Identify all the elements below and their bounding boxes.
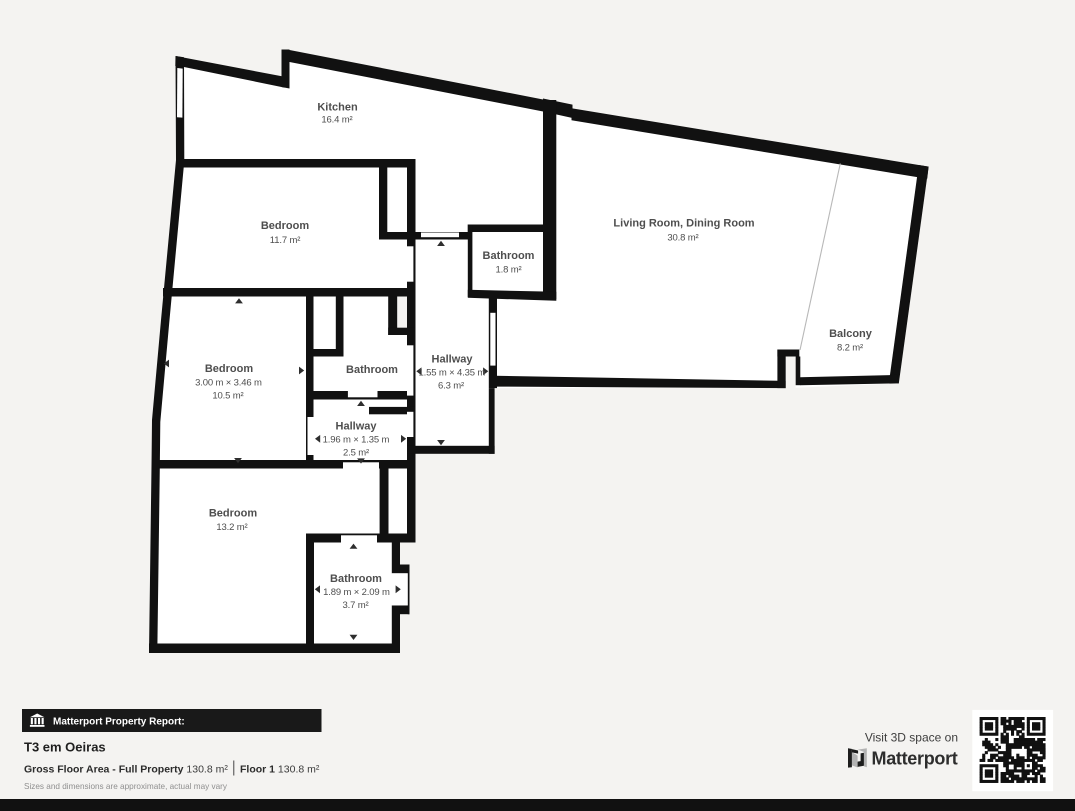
svg-text:Bathroom: Bathroom — [346, 364, 398, 376]
svg-text:2.5 m²: 2.5 m² — [343, 448, 369, 459]
svg-text:Sizes and dimensions are appro: Sizes and dimensions are approximate, ac… — [24, 782, 228, 791]
svg-text:Bathroom: Bathroom — [483, 250, 535, 262]
svg-text:Bedroom: Bedroom — [209, 508, 258, 520]
svg-text:Bedroom: Bedroom — [261, 220, 310, 232]
svg-text:13.2 m²: 13.2 m² — [216, 522, 247, 533]
svg-text:3.7 m²: 3.7 m² — [342, 600, 368, 611]
svg-text:Matterport: Matterport — [872, 749, 958, 769]
svg-text:Matterport Property Report:: Matterport Property Report: — [53, 717, 185, 728]
svg-text:Balcony: Balcony — [829, 328, 873, 340]
svg-text:Hallway: Hallway — [432, 354, 474, 366]
svg-text:T3 em Oeiras: T3 em Oeiras — [24, 740, 106, 755]
svg-text:Living Room, Dining Room: Living Room, Dining Room — [613, 218, 754, 230]
svg-text:1.96 m × 1.35 m: 1.96 m × 1.35 m — [323, 435, 390, 446]
svg-text:Hallway: Hallway — [336, 421, 378, 433]
svg-text:Gross Floor Area - Full Proper: Gross Floor Area - Full Property 130.8 m… — [24, 764, 228, 776]
svg-text:Bathroom: Bathroom — [330, 573, 382, 585]
svg-text:Visit 3D space on: Visit 3D space on — [865, 731, 958, 745]
svg-text:Bedroom: Bedroom — [205, 363, 254, 375]
svg-text:16.4 m²: 16.4 m² — [321, 114, 352, 125]
svg-text:10.5 m²: 10.5 m² — [212, 390, 243, 401]
svg-text:1.89 m × 2.09 m: 1.89 m × 2.09 m — [323, 587, 390, 598]
svg-text:Floor 1 130.8 m²: Floor 1 130.8 m² — [240, 764, 320, 776]
svg-text:1.8 m²: 1.8 m² — [495, 265, 521, 276]
svg-text:3.00 m × 3.46 m: 3.00 m × 3.46 m — [195, 377, 262, 388]
svg-text:1.55 m × 4.35 m: 1.55 m × 4.35 m — [418, 367, 485, 378]
svg-text:8.2 m²: 8.2 m² — [837, 342, 863, 353]
svg-text:Kitchen: Kitchen — [317, 102, 358, 114]
svg-text:30.8 m²: 30.8 m² — [667, 233, 698, 244]
svg-text:11.7 m²: 11.7 m² — [270, 235, 300, 246]
svg-text:6.3 m²: 6.3 m² — [438, 381, 464, 392]
